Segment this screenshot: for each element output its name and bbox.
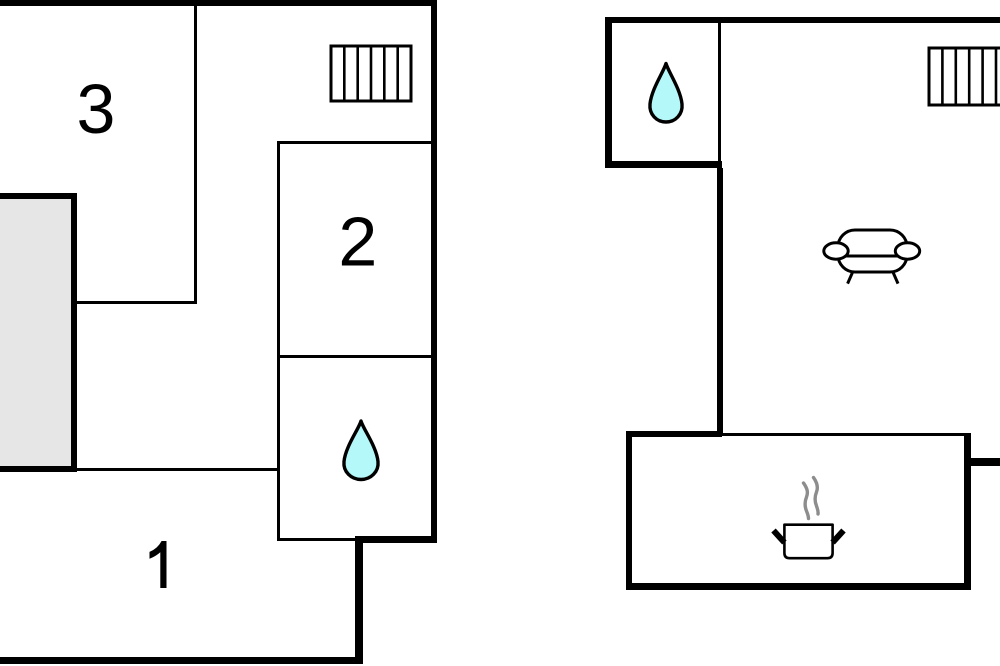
svg-text:2: 2 — [338, 203, 377, 281]
svg-text:3: 3 — [77, 70, 116, 148]
